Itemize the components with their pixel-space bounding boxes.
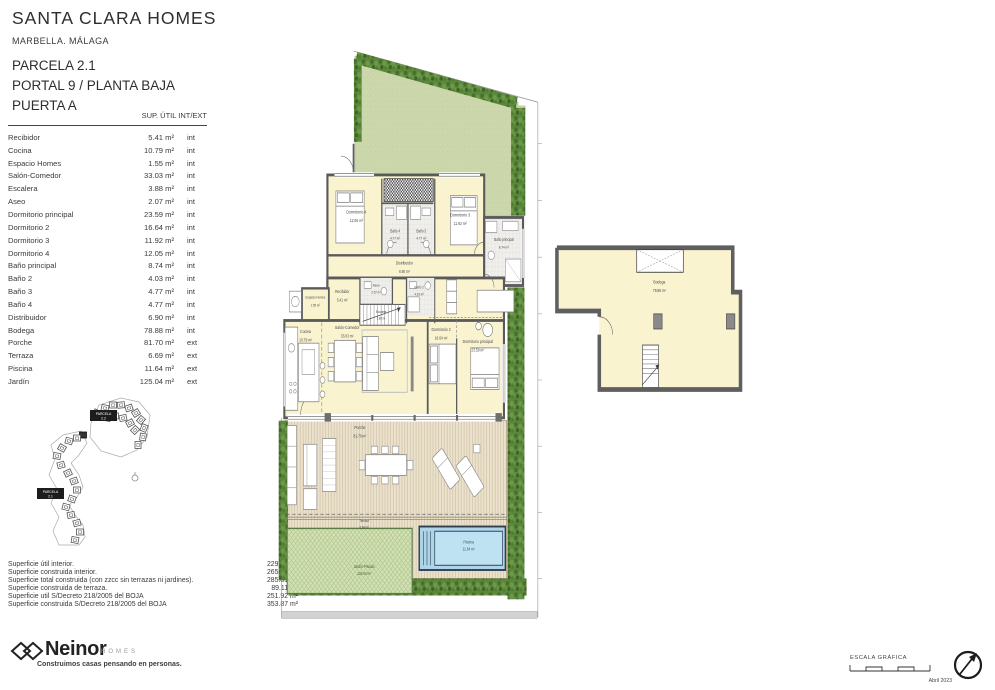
room-label-terraza: Terraza xyxy=(359,518,369,523)
room-label-escalera: Escalera xyxy=(376,310,387,315)
table-row: Distribuidor6.90 m²int xyxy=(8,311,220,324)
neinor-logo-icon xyxy=(9,640,45,663)
room-area-porche: 81.70 m² xyxy=(354,433,367,439)
room-label-bano4: Baño 4 xyxy=(390,229,400,234)
site-key-marker-icon xyxy=(132,475,138,481)
table-row: Porche81.70 m²ext xyxy=(8,337,220,350)
floorplan-sheet: SANTA CLARA HOMES MARBELLA. MÁLAGA PARCE… xyxy=(0,0,995,690)
room-label-banop: Baño principal xyxy=(494,238,514,243)
areas-table: Recibidor5.41 m²int Cocina10.79 m²int Es… xyxy=(8,131,220,388)
table-row: Aseo2.07 m²int xyxy=(8,195,220,208)
table-row: Dormitorio 412.05 m²int xyxy=(8,247,220,260)
table-row: Espacio Homes1.55 m²int xyxy=(8,157,220,170)
table-row: Dormitorio 311.92 m²int xyxy=(8,234,220,247)
table-row: Salón-Comedor33.03 m²int xyxy=(8,170,220,183)
room-area-dorm3: 11.92 m² xyxy=(454,220,468,226)
summary-block: Superficie útil interior.229.02 m² Super… xyxy=(8,561,298,608)
summary-row: Superficie total construida (con zzcc si… xyxy=(8,577,298,585)
parcela-21-line1: PARCELA xyxy=(43,490,59,494)
brand-tagline: Construimos casas pensando en personas. xyxy=(37,661,182,668)
table-row: Baño 44.77 m²int xyxy=(8,298,220,311)
date-label: Abril 2023 xyxy=(929,678,952,684)
room-label-dorm4: Dormitorio 4 xyxy=(346,209,366,215)
portal-label: PORTAL 9 / PLANTA BAJA xyxy=(12,76,175,96)
room-label-bodega: Bodega xyxy=(653,279,666,285)
site-key-map: PARCELA 2.2 PARCELA 2.1 xyxy=(35,393,200,553)
room-area-banop: 8.74 m² xyxy=(499,245,510,250)
brand-sub: HOMES xyxy=(101,649,138,655)
room-area-distribuidor: 6.90 m² xyxy=(399,270,410,275)
room-label-dorm2: Dormitorio 2 xyxy=(432,326,452,332)
table-row: Escalera3.88 m²int xyxy=(8,182,220,195)
room-area-piscina: 11.64 m² xyxy=(463,547,476,552)
room-area-cocina: 10.79 m² xyxy=(299,337,312,343)
room-area-dorm2: 16.64 m² xyxy=(435,335,448,341)
private-garden: Jardín Privado 125.04 m² xyxy=(287,528,412,593)
table-row: Dormitorio 216.64 m²int xyxy=(8,221,220,234)
table-row: Dormitorio principal23.59 m²int xyxy=(8,208,220,221)
table-row: Baño principal8.74 m²int xyxy=(8,259,220,272)
table-row: Terraza6.69 m²ext xyxy=(8,349,220,362)
parcela-21-line2: 2.1 xyxy=(48,495,53,499)
summary-row: Superficie construida interior.265.62 m² xyxy=(8,569,298,577)
room-area-bano4: 4.77 m² xyxy=(390,236,401,241)
bodega-staircase xyxy=(642,345,659,388)
room-label-cocina: Cocina xyxy=(300,328,312,334)
summary-row: Superficie útil interior.229.02 m² xyxy=(8,561,298,569)
room-area-escalera: 3.88 m² xyxy=(377,316,386,321)
parcela-22-line2: 2.2 xyxy=(101,417,106,421)
room-area-espacio: 1.55 m² xyxy=(311,303,321,308)
pool: Piscina 11.64 m² xyxy=(419,527,505,570)
room-area-recibidor: 5.41 m² xyxy=(337,298,348,303)
main-plan-svg: Jardín Privado 125.04 m² Piscina 11.64 m… xyxy=(278,36,946,656)
room-label-jardin: Jardín Privado xyxy=(354,565,375,570)
room-area-bano3: 4.77 m² xyxy=(416,236,427,241)
room-label-porche: Porche xyxy=(354,425,366,431)
parcela-22-line1: PARCELA xyxy=(96,412,112,416)
summary-row: Superficie construida de terraza.89.11 m… xyxy=(8,585,298,593)
room-label-bano3: Baño 3 xyxy=(416,229,426,234)
room-label-aseo: Aseo xyxy=(373,283,380,288)
summary-row: Superficie util S/Decreto 218/2005 del B… xyxy=(8,593,298,601)
room-area-bano2: 4.03 m² xyxy=(414,292,424,297)
glass-wall xyxy=(288,413,502,422)
room-area-dormp: 23.59 m² xyxy=(471,347,484,353)
staircase xyxy=(360,304,405,325)
room-label-salon: Salón-Comedor xyxy=(335,324,360,330)
bodega-plan: Bodega 78.88 m² xyxy=(557,248,741,390)
location-subtitle: MARBELLA. MÁLAGA xyxy=(12,36,109,46)
room-label-piscina: Piscina xyxy=(463,540,474,545)
page-title: SANTA CLARA HOMES xyxy=(12,8,216,29)
room-area-salon: 33.03 m² xyxy=(341,333,354,339)
room-label-dorm3: Dormitorio 3 xyxy=(450,212,470,218)
brand-name: Neinor xyxy=(45,638,107,661)
room-area-aseo: 2.07 m² xyxy=(371,290,381,295)
table-rule xyxy=(8,125,207,126)
room-area-terraza: 6.69 m² xyxy=(360,525,369,530)
table-row: Baño 24.03 m²int xyxy=(8,272,220,285)
ac-unit xyxy=(289,291,301,312)
room-label-distribuidor: Distribuidor xyxy=(396,260,414,266)
room-label-dormp: Dormitorio principal xyxy=(463,339,493,345)
room-area-dorm4: 12.05 m² xyxy=(350,218,364,224)
north-arrow-icon xyxy=(950,648,986,684)
plot-identifiers: PARCELA 2.1 PORTAL 9 / PLANTA BAJA PUERT… xyxy=(12,56,175,116)
table-row: Cocina10.79 m²int xyxy=(8,144,220,157)
parcela-label: PARCELA 2.1 xyxy=(12,56,175,76)
room-area-bodega: 78.88 m² xyxy=(653,288,666,294)
room-area-jardin: 125.04 m² xyxy=(357,572,372,577)
areas-table-header: SUP. ÚTIL INT/EXT xyxy=(8,111,207,120)
table-row: Bodega78.88 m²int xyxy=(8,324,220,337)
room-label-recibidor: Recibidor xyxy=(335,289,350,295)
table-row: Recibidor5.41 m²int xyxy=(8,131,220,144)
summary-row: Superficie construida S/Decreto 218/2005… xyxy=(8,600,298,608)
table-row: Jardín125.04 m²ext xyxy=(8,375,220,388)
table-row: Baño 34.77 m²int xyxy=(8,285,220,298)
table-row: Piscina11.64 m²ext xyxy=(8,362,220,375)
room-label-espacio: Espacio Homes xyxy=(306,295,326,300)
room-label-bano2: Baño 2 xyxy=(415,285,424,290)
